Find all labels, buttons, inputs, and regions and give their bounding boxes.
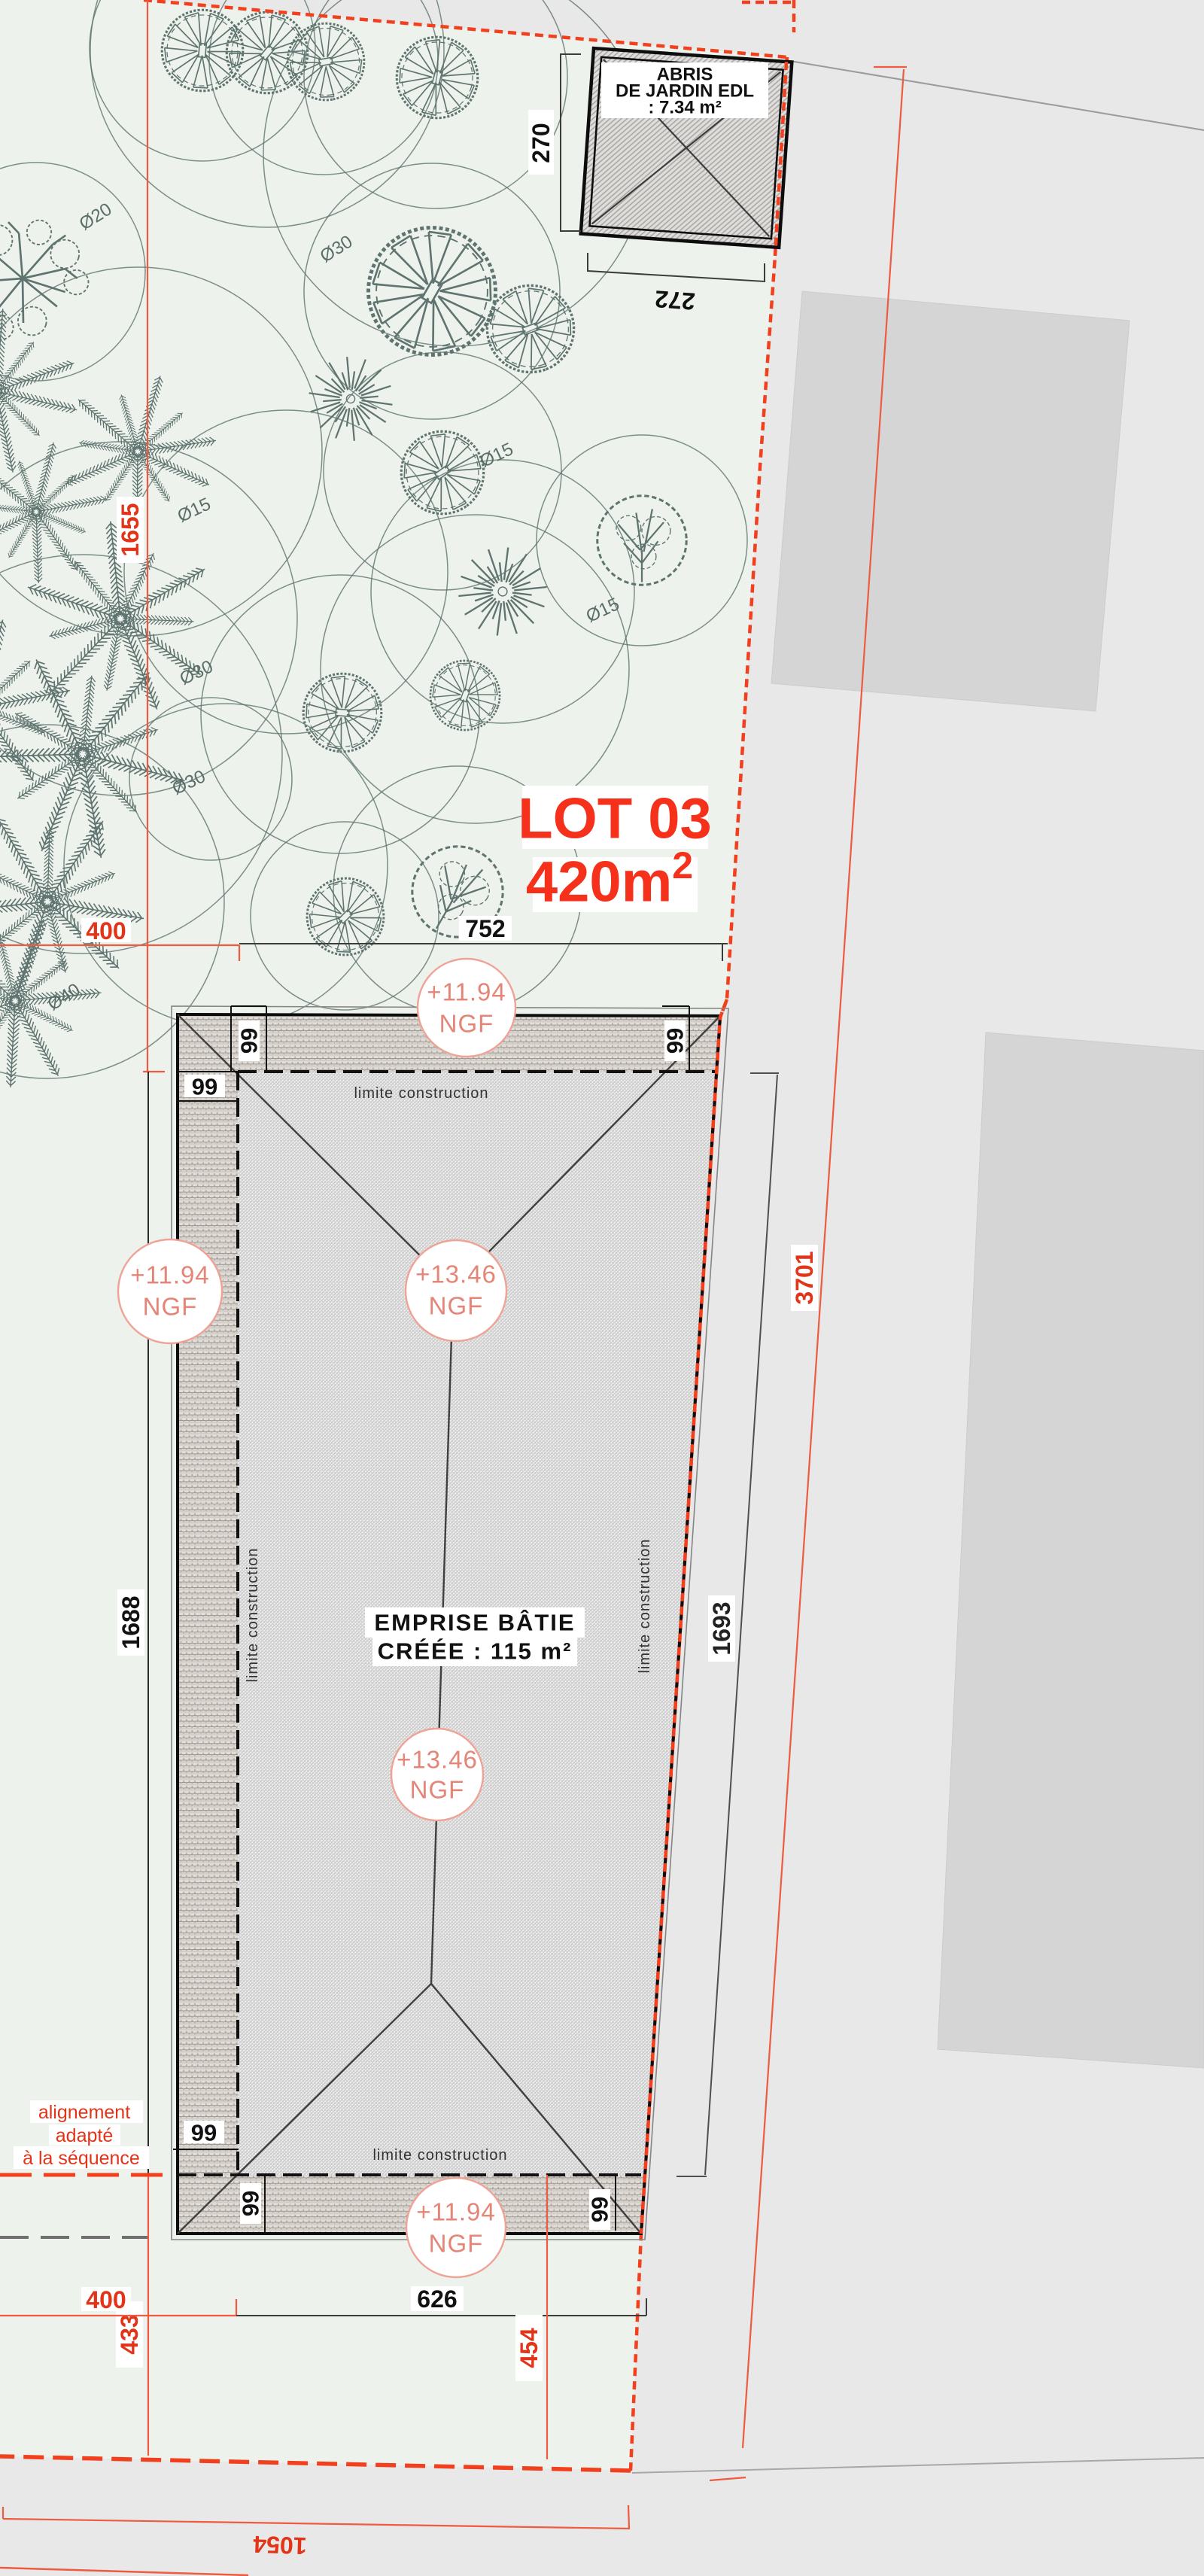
svg-text:limite construction: limite construction xyxy=(637,1538,653,1673)
svg-text:+13.46: +13.46 xyxy=(397,1746,478,1774)
svg-text:99: 99 xyxy=(238,2191,264,2216)
svg-text:99: 99 xyxy=(587,2197,613,2222)
svg-text:752: 752 xyxy=(465,915,505,942)
svg-text:EMPRISE BÂTIE: EMPRISE BÂTIE xyxy=(374,1609,575,1636)
svg-text:+11.94: +11.94 xyxy=(416,2198,495,2226)
svg-text:626: 626 xyxy=(417,2286,457,2313)
svg-text:3701: 3701 xyxy=(791,1251,818,1304)
svg-text:99: 99 xyxy=(192,1074,217,1100)
svg-text:99: 99 xyxy=(662,1028,689,1054)
svg-text:+11.94: +11.94 xyxy=(427,978,506,1006)
svg-text:alignement: alignement xyxy=(38,2102,130,2123)
svg-text:1693: 1693 xyxy=(708,1601,735,1655)
svg-text:454: 454 xyxy=(515,2328,543,2368)
svg-text:270: 270 xyxy=(528,123,555,163)
svg-text:à la séquence: à la séquence xyxy=(23,2148,140,2169)
svg-text:limite construction: limite construction xyxy=(245,1547,261,1682)
svg-text:limite construction: limite construction xyxy=(372,2147,507,2164)
svg-text:433: 433 xyxy=(116,2314,143,2354)
svg-text:NGF: NGF xyxy=(429,2230,484,2258)
svg-text:NGF: NGF xyxy=(439,1010,494,1038)
svg-text:LOT 03: LOT 03 xyxy=(518,787,712,851)
svg-text:NGF: NGF xyxy=(429,1292,484,1320)
svg-text:1655: 1655 xyxy=(117,503,144,556)
svg-text:99: 99 xyxy=(191,2120,217,2146)
svg-text:: 7.34 m²: : 7.34 m² xyxy=(648,98,721,118)
svg-text:+13.46: +13.46 xyxy=(415,1261,497,1288)
svg-text:CRÉÉE : 115 m²: CRÉÉE : 115 m² xyxy=(378,1638,573,1665)
svg-text:+11.94: +11.94 xyxy=(130,1261,209,1289)
svg-text:1688: 1688 xyxy=(117,1595,144,1649)
svg-text:NGF: NGF xyxy=(410,1776,465,1804)
svg-text:limite construction: limite construction xyxy=(354,1085,488,1102)
svg-text:99: 99 xyxy=(236,1028,263,1054)
svg-text:1054: 1054 xyxy=(253,2531,308,2559)
svg-text:420m2: 420m2 xyxy=(526,844,693,914)
svg-text:400: 400 xyxy=(86,917,126,944)
svg-text:400: 400 xyxy=(86,2286,126,2313)
svg-text:NGF: NGF xyxy=(143,1293,198,1321)
svg-text:adapté: adapté xyxy=(56,2125,113,2146)
svg-text:272: 272 xyxy=(654,285,696,315)
